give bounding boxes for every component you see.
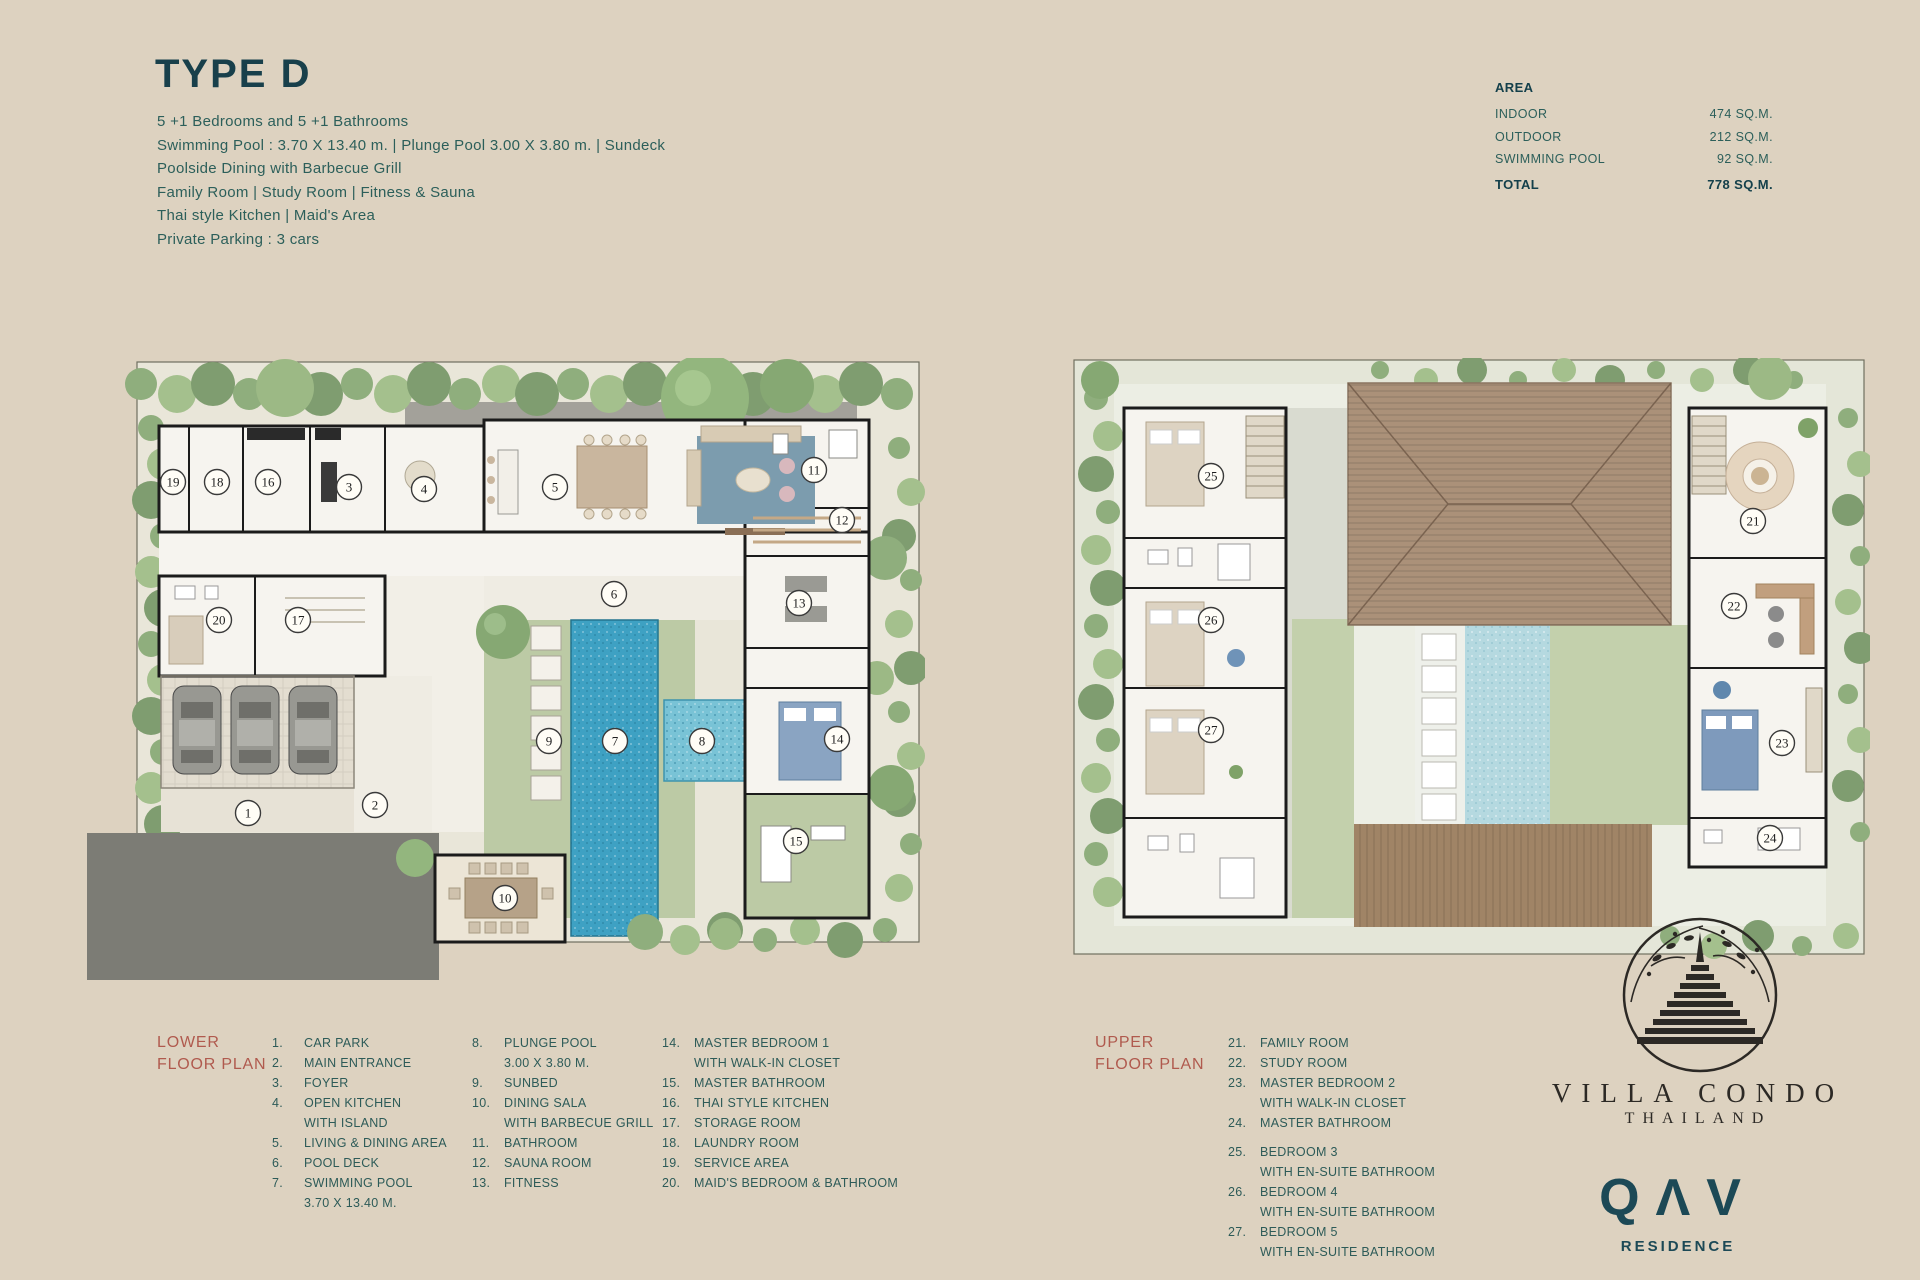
legend-item: 19.SERVICE AREA — [662, 1153, 922, 1173]
legend-item: 6.POOL DECK — [272, 1153, 502, 1173]
legend-item: 7.SWIMMING POOL3.70 X 13.40 M. — [272, 1173, 502, 1213]
description-line: Thai style Kitchen | Maid's Area — [157, 204, 797, 228]
logo-pagoda — [1637, 932, 1763, 1044]
lower-title-line1: LOWER — [157, 1032, 266, 1054]
svg-text:6: 6 — [611, 587, 618, 602]
armchair — [1713, 681, 1731, 699]
legend-item: 1.CAR PARK — [272, 1033, 502, 1053]
upper-floor-plan-drawing: 25262721222324 — [1070, 358, 1870, 962]
svg-text:24: 24 — [1764, 831, 1778, 846]
area-value: 212 SQ.M. — [1710, 126, 1773, 149]
legend-item: 22.STUDY ROOM — [1228, 1053, 1458, 1073]
cars — [173, 686, 337, 774]
description-line: Family Room | Study Room | Fitness & Sau… — [157, 181, 797, 205]
svg-text:3: 3 — [346, 480, 353, 495]
legend-item: 4.OPEN KITCHENWITH ISLAND — [272, 1093, 502, 1133]
svg-text:26: 26 — [1205, 613, 1219, 628]
svg-text:8: 8 — [699, 734, 706, 749]
legend-item: 24.MASTER BATHROOM — [1228, 1113, 1458, 1133]
legend-item: 21.FAMILY ROOM — [1228, 1033, 1458, 1053]
svg-text:22: 22 — [1728, 599, 1741, 614]
lower-floor-plan-title: LOWER FLOOR PLAN — [157, 1032, 266, 1076]
legend-item: 14.MASTER BEDROOM 1WITH WALK-IN CLOSET — [662, 1033, 922, 1073]
description-line: Private Parking : 3 cars — [157, 228, 797, 252]
svg-text:20: 20 — [213, 613, 226, 628]
unit-description: 5 +1 Bedrooms and 5 +1 Bathrooms Swimmin… — [157, 110, 797, 251]
svg-text:17: 17 — [292, 613, 306, 628]
svg-text:13: 13 — [793, 596, 806, 611]
svg-text:10: 10 — [499, 891, 512, 906]
area-row-indoor: INDOOR 474 SQ.M. — [1495, 103, 1773, 126]
legend-item: 5.LIVING & DINING AREA — [272, 1133, 502, 1153]
qav-logo: QΛV — [1558, 1168, 1798, 1228]
svg-text:14: 14 — [831, 732, 845, 747]
svg-text:23: 23 — [1776, 736, 1789, 751]
stairs — [1692, 416, 1726, 494]
upper-title-line1: UPPER — [1095, 1032, 1204, 1054]
legend-item: 20.MAID'S BEDROOM & BATHROOM — [662, 1173, 922, 1193]
lower-legend-col-1: 1.CAR PARK2.MAIN ENTRANCE3.FOYER4.OPEN K… — [272, 1033, 502, 1213]
svg-text:27: 27 — [1205, 723, 1219, 738]
description-line: 5 +1 Bedrooms and 5 +1 Bathrooms — [157, 110, 797, 134]
svg-text:7: 7 — [612, 734, 619, 749]
legend-item: 3.FOYER — [272, 1073, 502, 1093]
svg-text:21: 21 — [1747, 514, 1760, 529]
upper-sunbeds — [1415, 625, 1465, 825]
area-label: INDOOR — [1495, 103, 1547, 126]
area-row-outdoor: OUTDOOR 212 SQ.M. — [1495, 126, 1773, 149]
area-value: 92 SQ.M. — [1717, 148, 1773, 171]
svg-text:11: 11 — [808, 463, 821, 478]
villa-condo-wordmark: VILLA CONDO — [1548, 1078, 1848, 1109]
upper-right-wing — [1689, 408, 1826, 867]
upper-grass-left — [1292, 619, 1354, 918]
legend-item: 15.MASTER BATHROOM — [662, 1073, 922, 1093]
svg-text:1: 1 — [245, 806, 252, 821]
description-line: Swimming Pool : 3.70 X 13.40 m. | Plunge… — [157, 134, 797, 158]
upper-legend-col-1: 21.FAMILY ROOM22.STUDY ROOM23.MASTER BED… — [1228, 1033, 1458, 1262]
legend-item: 16.THAI STYLE KITCHEN — [662, 1093, 922, 1113]
svg-text:19: 19 — [167, 475, 180, 490]
svg-text:4: 4 — [421, 482, 428, 497]
legend-item: 27.BEDROOM 5WITH EN-SUITE BATHROOM — [1228, 1222, 1458, 1262]
qav-residence-label: RESIDENCE — [1558, 1238, 1798, 1255]
svg-text:15: 15 — [790, 834, 803, 849]
svg-text:18: 18 — [211, 475, 224, 490]
area-table-title: AREA — [1495, 80, 1773, 95]
area-row-total: TOTAL 778 SQ.M. — [1495, 174, 1773, 197]
svg-text:16: 16 — [262, 475, 276, 490]
stairs — [1246, 416, 1284, 498]
driveway — [87, 833, 439, 980]
lower-floor-plan-drawing: 1918163451112613201797814121510 — [85, 358, 925, 986]
legend-item: 25.BEDROOM 3WITH EN-SUITE BATHROOM — [1228, 1142, 1458, 1182]
upper-floor-plan-title: UPPER FLOOR PLAN — [1095, 1032, 1204, 1076]
bed — [1146, 422, 1204, 506]
lower-title-line2: FLOOR PLAN — [157, 1054, 266, 1076]
area-row-pool: SWIMMING POOL 92 SQ.M. — [1495, 148, 1773, 171]
legend-item: 23.MASTER BEDROOM 2WITH WALK-IN CLOSET — [1228, 1073, 1458, 1113]
dining-table — [577, 435, 647, 519]
area-value: 474 SQ.M. — [1710, 103, 1773, 126]
hip-roof — [1348, 383, 1671, 625]
page-title: TYPE D — [155, 52, 311, 97]
svg-text:25: 25 — [1205, 469, 1218, 484]
upper-title-line2: FLOOR PLAN — [1095, 1054, 1204, 1076]
floorplan-brochure-page: { "header": { "title": "TYPE D", "descri… — [0, 0, 1920, 1280]
upper-grass-right — [1550, 625, 1689, 825]
svg-text:9: 9 — [546, 734, 553, 749]
legend-item: 17.STORAGE ROOM — [662, 1113, 922, 1133]
villa-condo-country: THAILAND — [1548, 1110, 1848, 1128]
area-value: 778 SQ.M. — [1707, 174, 1773, 197]
area-label: OUTDOOR — [1495, 126, 1562, 149]
swimming-pool — [571, 620, 658, 936]
svg-text:12: 12 — [836, 513, 849, 528]
lower-legend-col-3: 14.MASTER BEDROOM 1WITH WALK-IN CLOSET15… — [662, 1033, 922, 1193]
legend-item: 18.LAUNDRY ROOM — [662, 1133, 922, 1153]
villa-condo-logo-icon — [1605, 910, 1795, 1076]
svg-text:2: 2 — [372, 798, 379, 813]
area-table: AREA INDOOR 474 SQ.M. OUTDOOR 212 SQ.M. … — [1495, 80, 1773, 196]
area-label: SWIMMING POOL — [1495, 148, 1605, 171]
legend-item: 26.BEDROOM 4WITH EN-SUITE BATHROOM — [1228, 1182, 1458, 1222]
legend-item: 2.MAIN ENTRANCE — [272, 1053, 502, 1073]
description-line: Poolside Dining with Barbecue Grill — [157, 157, 797, 181]
upper-pool — [1465, 625, 1550, 825]
area-label: TOTAL — [1495, 174, 1539, 197]
svg-text:5: 5 — [552, 480, 559, 495]
